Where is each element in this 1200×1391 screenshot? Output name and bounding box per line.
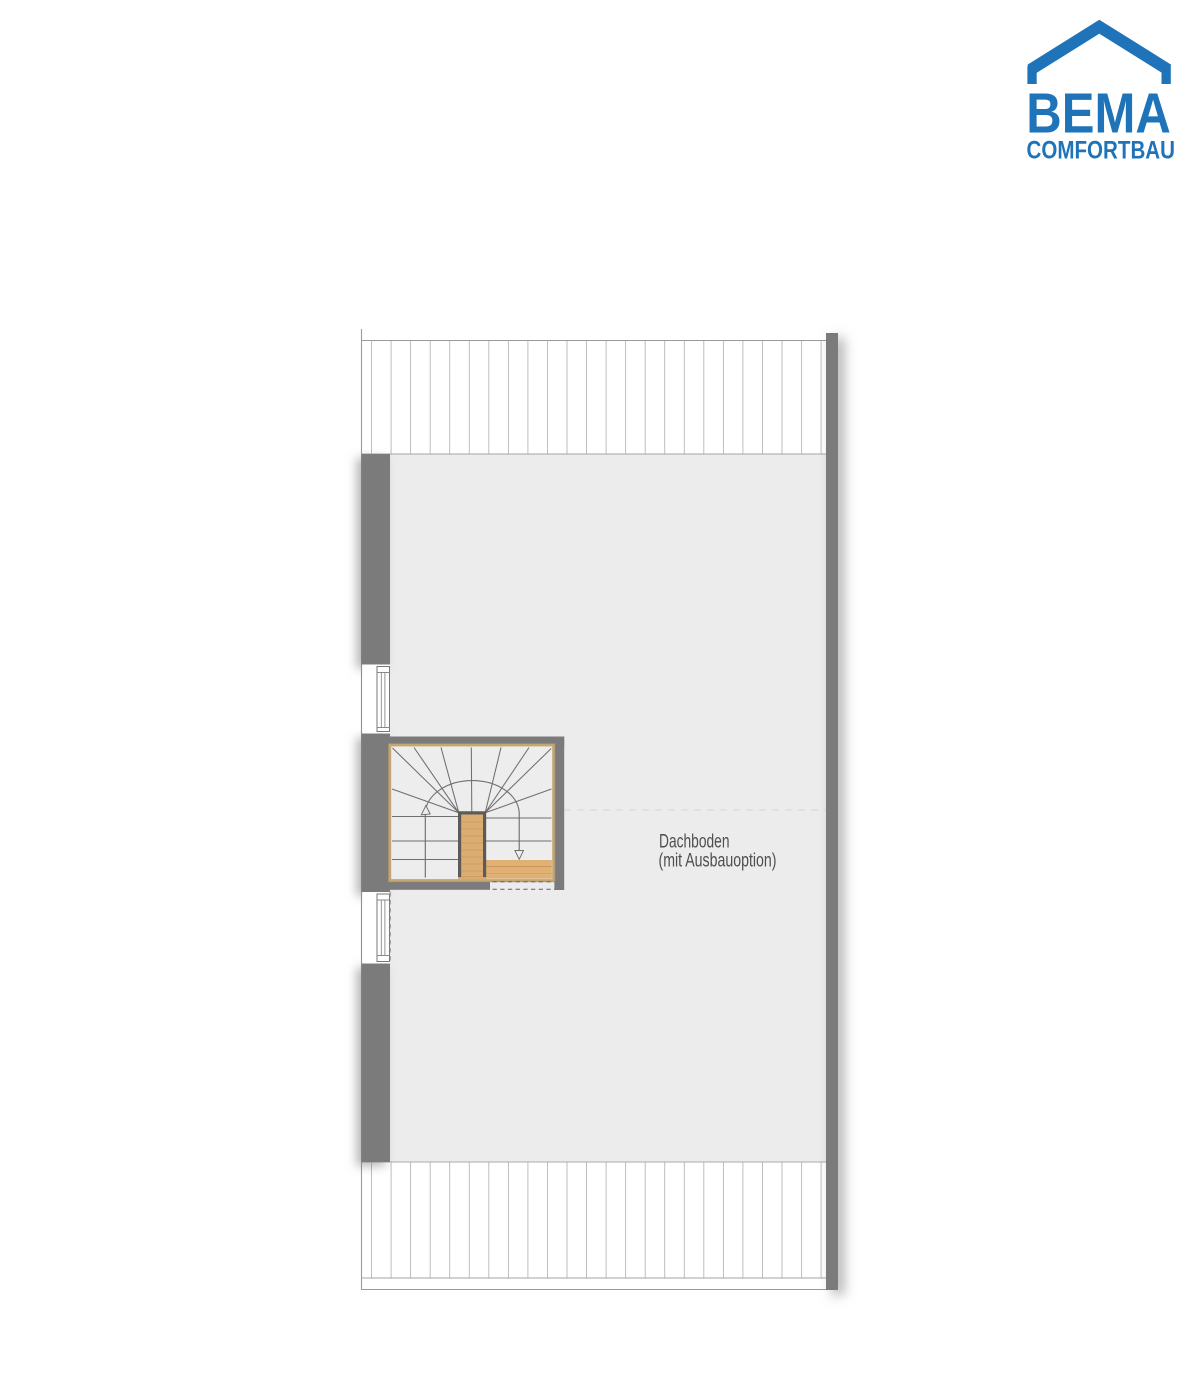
- svg-text:BEMA: BEMA: [1026, 81, 1171, 144]
- svg-text:(mit Ausbauoption): (mit Ausbauoption): [659, 850, 777, 872]
- svg-text:COMFORTBAU: COMFORTBAU: [1027, 137, 1176, 164]
